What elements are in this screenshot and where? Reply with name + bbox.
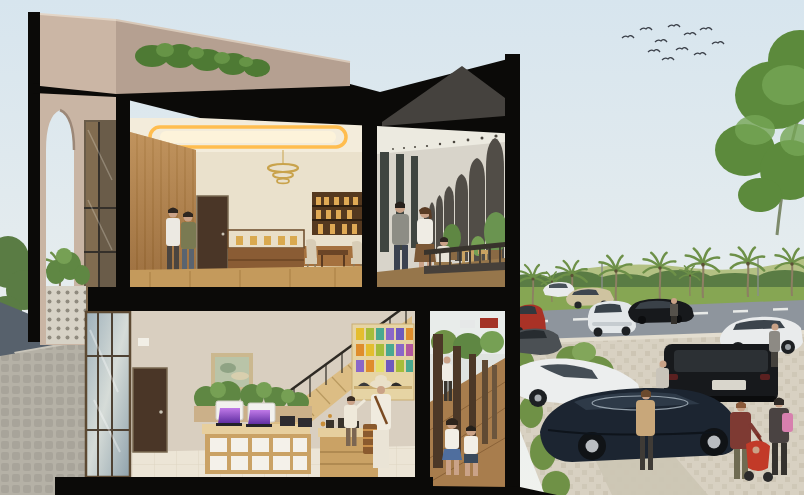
tablet <box>280 416 295 426</box>
cut-facade-interior-band <box>116 85 130 311</box>
cafe-door <box>197 196 228 270</box>
wall-shelf <box>312 192 362 235</box>
ground-floor-retail <box>86 300 415 477</box>
cut-right-edge <box>505 54 520 490</box>
upper-floor-cafe <box>130 118 363 287</box>
white-suv <box>588 301 636 337</box>
cut-floor-slab <box>88 287 520 311</box>
cut-left-edge <box>28 12 40 342</box>
building-section <box>28 12 557 495</box>
cut-base <box>55 477 433 495</box>
breeze-block-wall <box>46 286 86 344</box>
cut-arcade-divider <box>415 310 430 490</box>
parapet-front <box>40 14 116 94</box>
architectural-rendering <box>0 0 804 495</box>
pedestrian-by-sedan <box>670 298 678 324</box>
ground-arcade <box>430 310 505 490</box>
cove-light-inner <box>160 131 336 143</box>
tablet-2 <box>298 418 312 427</box>
storefront-glass <box>86 312 130 477</box>
cut-corridor-divider <box>362 108 377 288</box>
balcony-corridor <box>377 106 508 287</box>
black-sedan <box>628 299 694 324</box>
scene-canvas <box>0 0 804 495</box>
